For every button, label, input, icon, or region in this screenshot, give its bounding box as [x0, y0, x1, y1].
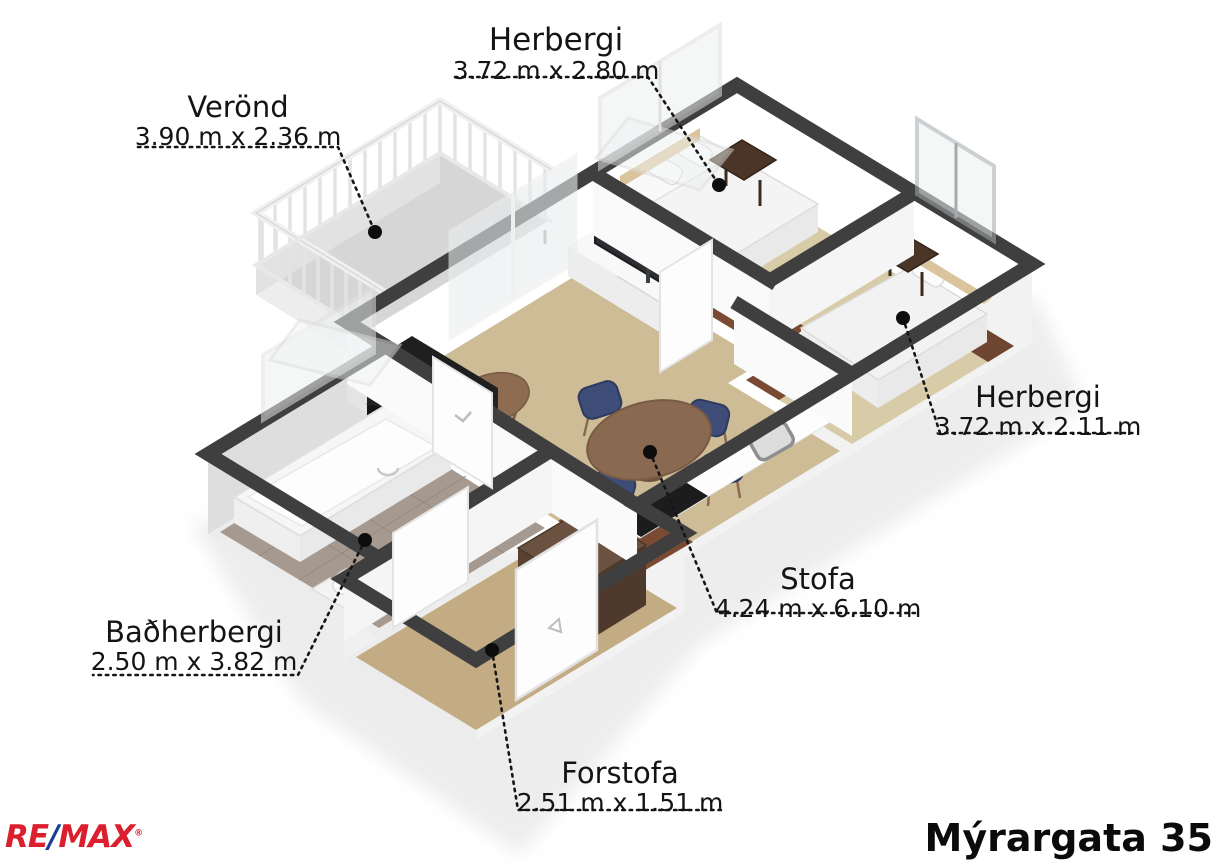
floorplan-3d-rendering	[0, 0, 1227, 867]
floorplan-page: Herbergi 3.72 m x 2.80 m Verönd 3.90 m x…	[0, 0, 1227, 867]
registered-mark-icon: ®	[134, 829, 143, 839]
address-title: Mýrargata 35	[925, 816, 1213, 860]
remax-logo-max: MAX	[58, 819, 134, 855]
remax-logo-slash: /	[48, 819, 58, 855]
remax-logo-re: RE	[5, 819, 48, 855]
remax-logo: RE/MAX®	[5, 822, 143, 853]
